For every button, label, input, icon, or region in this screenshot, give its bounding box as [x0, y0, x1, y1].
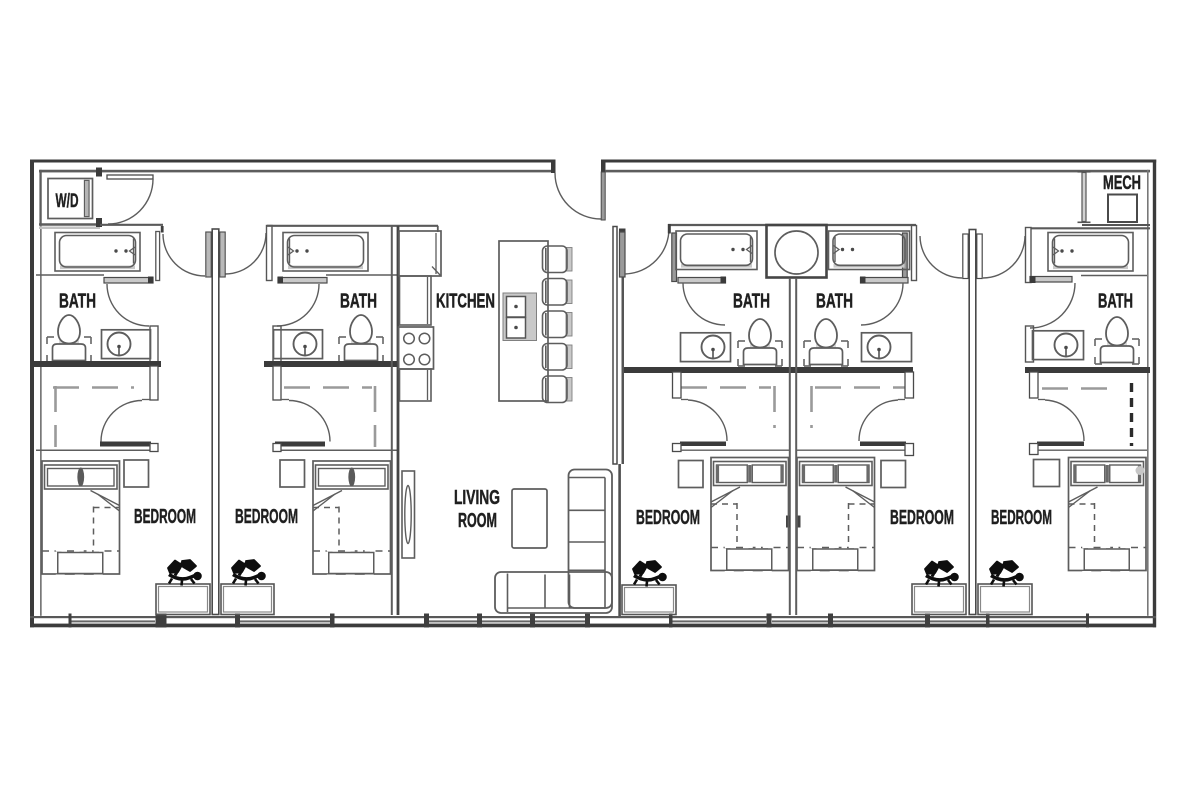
- svg-text:BATH: BATH: [816, 291, 853, 313]
- svg-text:BEDROOM: BEDROOM: [235, 506, 298, 528]
- svg-text:ROOM: ROOM: [458, 510, 497, 532]
- svg-text:BEDROOM: BEDROOM: [134, 506, 196, 528]
- svg-text:BEDROOM: BEDROOM: [890, 507, 954, 529]
- svg-text:MECH: MECH: [1103, 173, 1141, 194]
- svg-text:BATH: BATH: [340, 291, 377, 313]
- svg-text:BATH: BATH: [59, 291, 96, 313]
- svg-text:BEDROOM: BEDROOM: [636, 507, 700, 529]
- svg-text:BATH: BATH: [1098, 291, 1133, 313]
- svg-text:LIVING: LIVING: [454, 487, 500, 509]
- svg-text:KITCHEN: KITCHEN: [436, 291, 495, 313]
- svg-text:W/D: W/D: [56, 191, 79, 212]
- svg-text:BEDROOM: BEDROOM: [991, 507, 1052, 529]
- svg-text:BATH: BATH: [733, 291, 770, 313]
